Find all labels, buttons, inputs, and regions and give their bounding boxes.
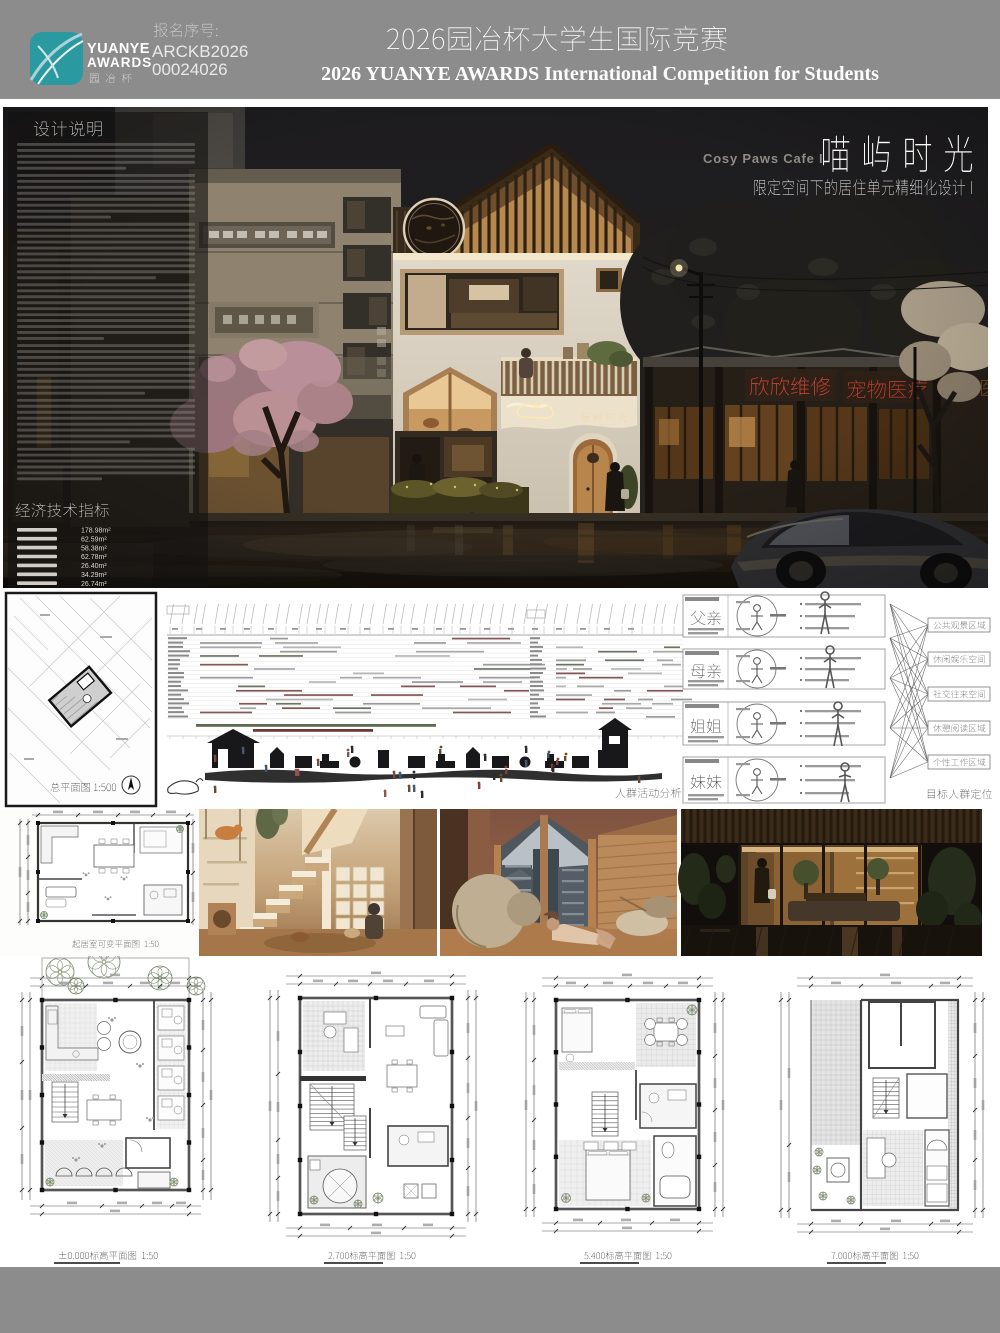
svg-text:62.59m²: 62.59m²: [81, 536, 107, 543]
svg-text:34.29m²: 34.29m²: [81, 572, 107, 579]
svg-text:00024026: 00024026: [152, 60, 228, 79]
svg-text:ARCKB2026: ARCKB2026: [152, 42, 248, 61]
svg-text:62.78m²: 62.78m²: [81, 554, 107, 561]
svg-text:26.40m²: 26.40m²: [81, 563, 107, 570]
svg-text:Cosy Paws Cafe I: Cosy Paws Cafe I: [703, 151, 823, 166]
svg-text:2026 YUANYE AWARDS Internation: 2026 YUANYE AWARDS International Competi…: [321, 63, 879, 85]
svg-text:178.98m²: 178.98m²: [81, 528, 111, 535]
svg-text:AWARDS: AWARDS: [87, 55, 152, 70]
svg-text:58.38m²: 58.38m²: [81, 545, 107, 552]
svg-text:26.74m²: 26.74m²: [81, 581, 107, 588]
